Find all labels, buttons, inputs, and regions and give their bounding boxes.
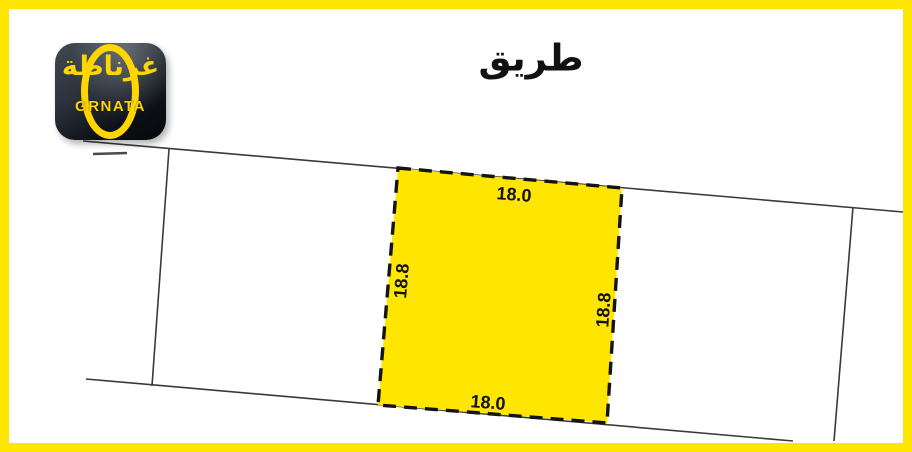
parcel-dimension-right: 18.8 xyxy=(592,292,615,328)
logo-latin-name: GRNATA xyxy=(55,98,166,115)
road-label: طريق xyxy=(478,37,583,80)
parcel-dimension-bottom: 18.0 xyxy=(470,391,507,415)
plot-map-page: طريق 18.0 18.0 18.8 18.8 غرناطة GRNATA xyxy=(0,0,912,452)
left-parcel-divider-line xyxy=(152,149,169,386)
grnata-logo: غرناطة GRNATA xyxy=(55,43,166,140)
parcel-dimension-left: 18.8 xyxy=(390,263,414,300)
parcel-dimension-top: 18.0 xyxy=(496,183,533,207)
highlighted-parcel xyxy=(378,168,622,423)
right-parcel-divider-line xyxy=(834,207,853,441)
logo-arabic-name: غرناطة xyxy=(55,51,166,82)
logo-underline-mark xyxy=(93,153,127,154)
